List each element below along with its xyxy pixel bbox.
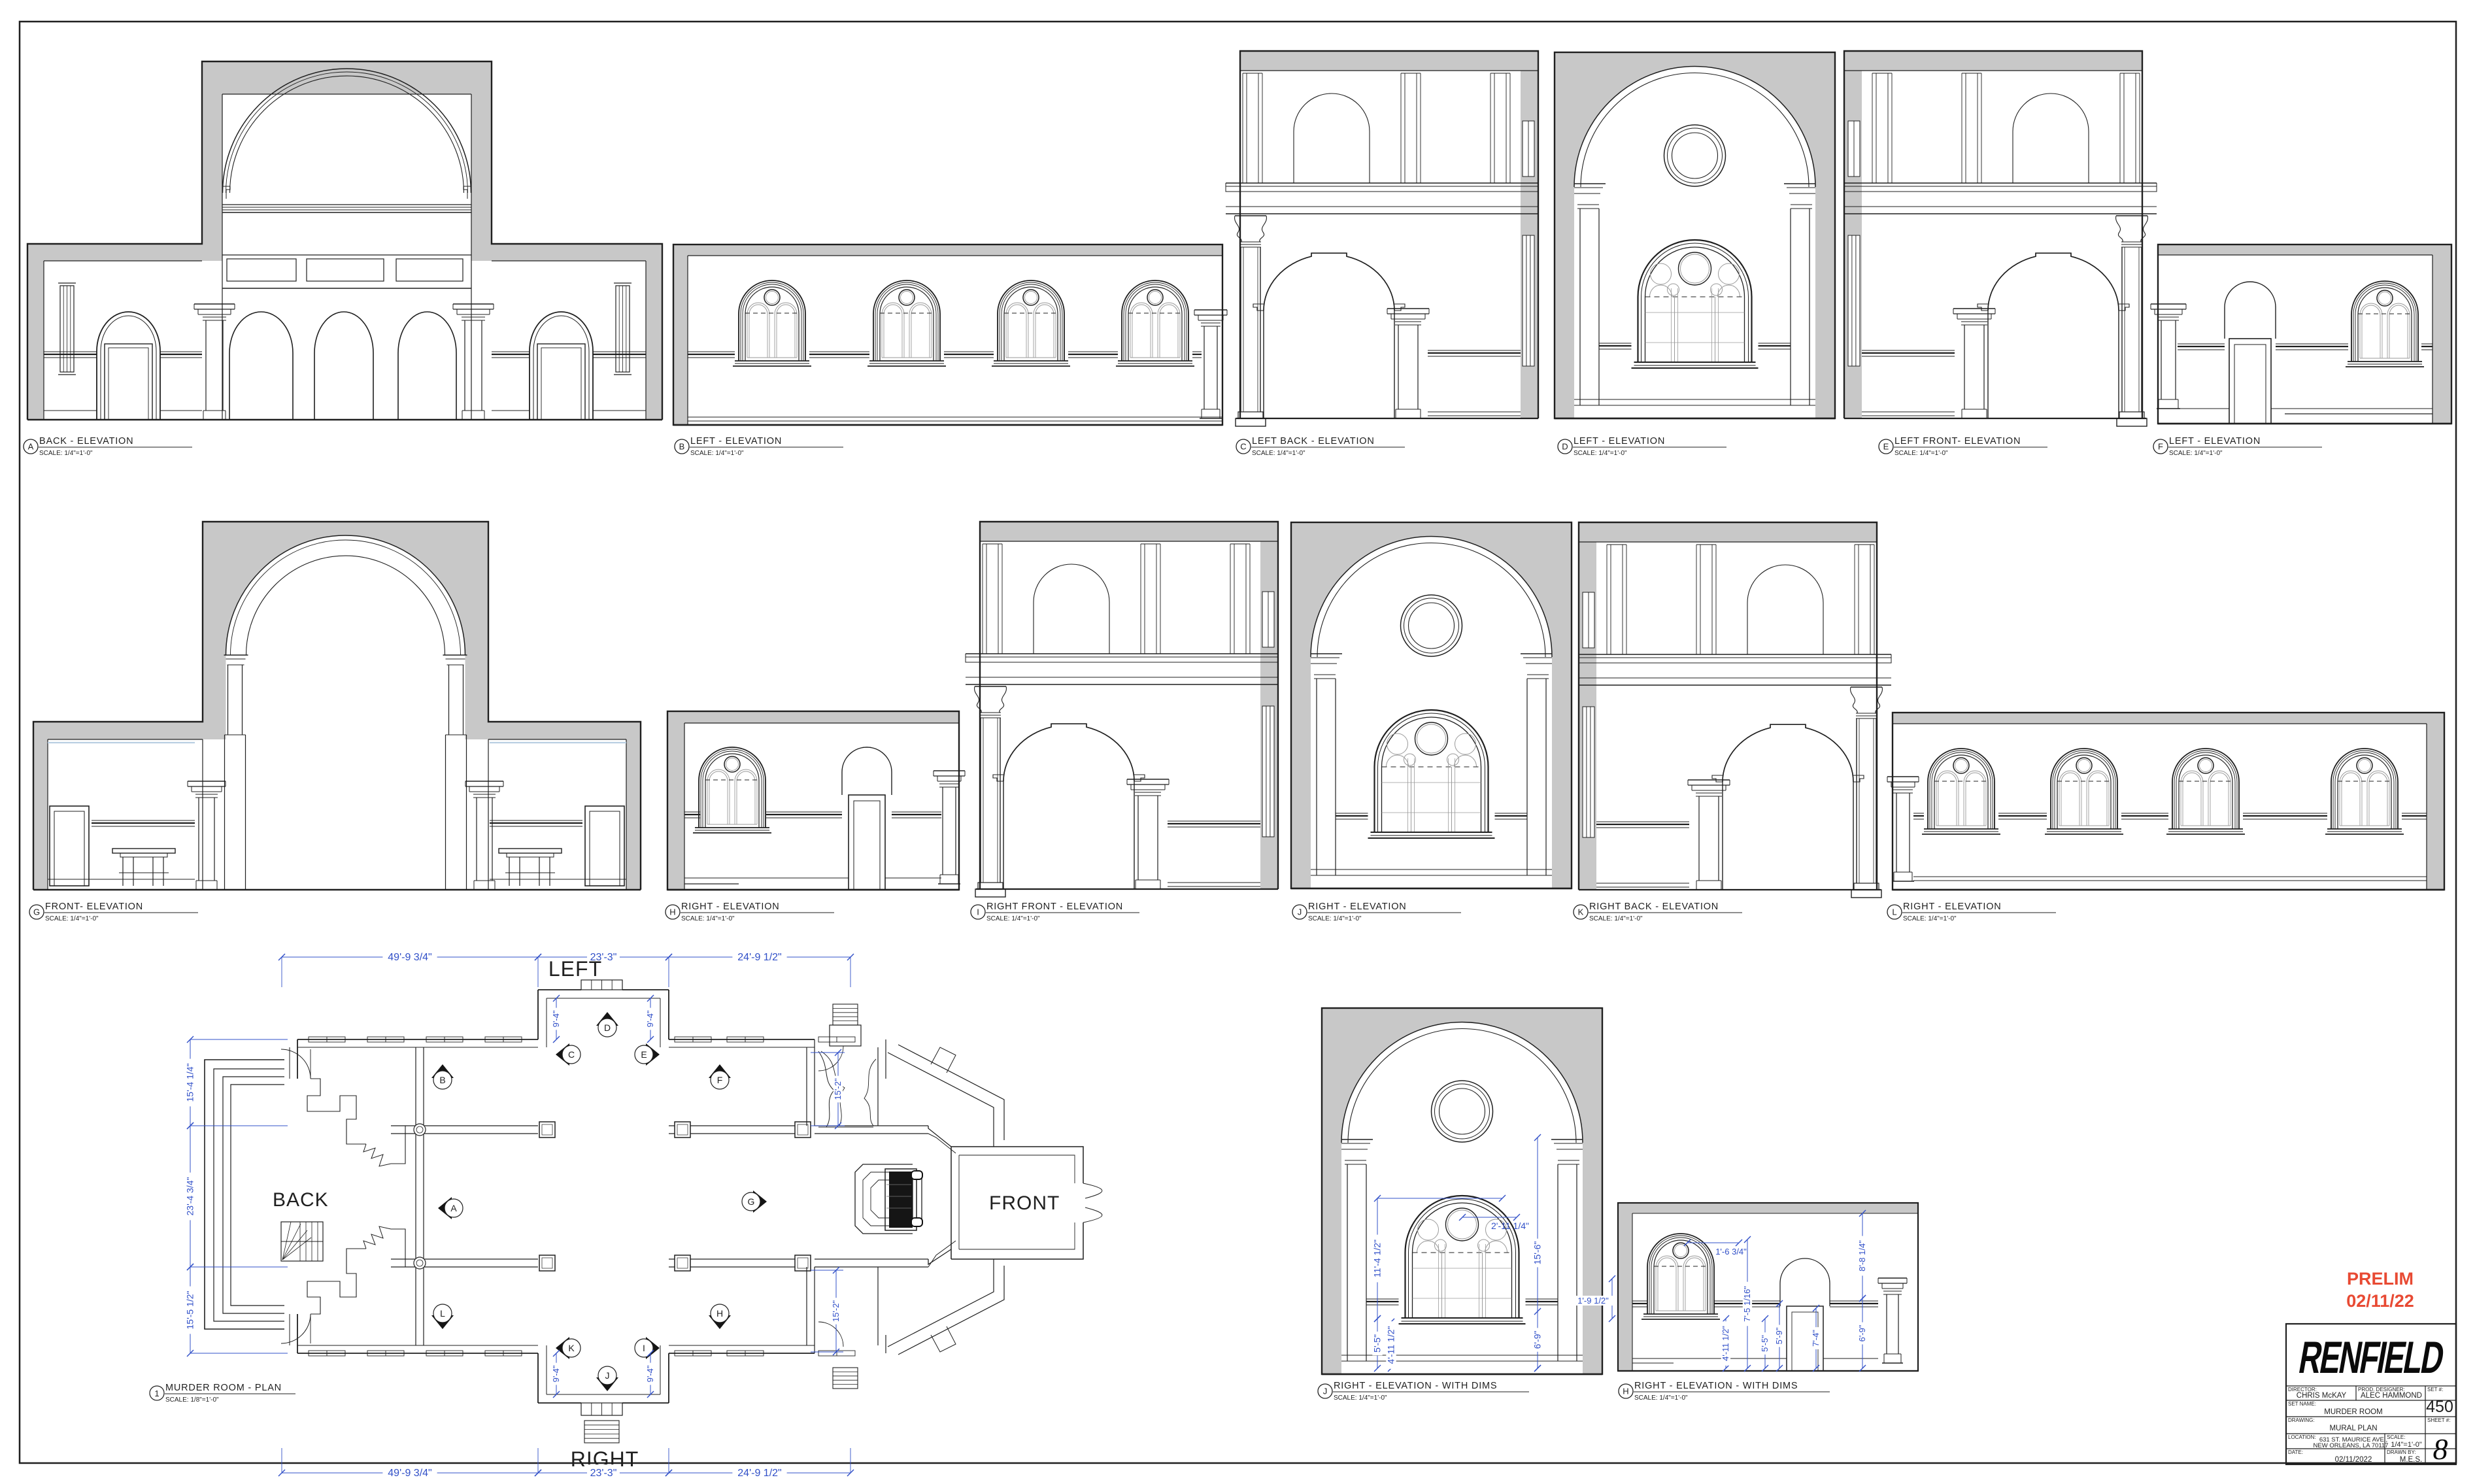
svg-text:K: K	[568, 1343, 575, 1353]
svg-text:FRONT- ELEVATION: FRONT- ELEVATION	[45, 902, 143, 912]
svg-text:6'-9": 6'-9"	[1857, 1324, 1867, 1341]
svg-text:LEFT - ELEVATION: LEFT - ELEVATION	[1574, 436, 1665, 447]
svg-text:C: C	[1240, 442, 1246, 452]
svg-text:2'-11 1/4": 2'-11 1/4"	[1491, 1221, 1529, 1231]
svg-text:49'-9 3/4": 49'-9 3/4"	[388, 1468, 431, 1479]
svg-text:15'-4 1/4": 15'-4 1/4"	[184, 1063, 195, 1102]
svg-text:B: B	[439, 1075, 445, 1085]
svg-text:J: J	[605, 1370, 610, 1381]
svg-text:9'-4": 9'-4"	[645, 1010, 655, 1027]
svg-text:4'-11 1/2": 4'-11 1/2"	[1721, 1326, 1730, 1361]
svg-text:15'-2": 15'-2"	[831, 1300, 841, 1323]
svg-text:LEFT BACK - ELEVATION: LEFT BACK - ELEVATION	[1252, 436, 1375, 447]
svg-text:NEW ORLEANS, LA 70117: NEW ORLEANS, LA 70117	[2314, 1442, 2389, 1449]
svg-text:23'-3": 23'-3"	[590, 1468, 617, 1479]
svg-text:SET #:: SET #:	[2427, 1387, 2443, 1392]
svg-text:H: H	[1623, 1387, 1628, 1396]
svg-text:9'-4": 9'-4"	[645, 1365, 655, 1382]
svg-text:02/11/2022: 02/11/2022	[2335, 1456, 2372, 1464]
svg-text:CHRIS McKAY: CHRIS McKAY	[2297, 1392, 2347, 1400]
svg-text:15'-6": 15'-6"	[1532, 1241, 1542, 1265]
svg-text:ALEC HAMMOND: ALEC HAMMOND	[2361, 1392, 2422, 1400]
svg-text:1'-9 1/2": 1'-9 1/2"	[1577, 1296, 1609, 1306]
svg-text:SCALE: 1/4"=1'-0": SCALE: 1/4"=1'-0"	[45, 915, 99, 922]
svg-text:J: J	[1323, 1387, 1328, 1396]
svg-text:L: L	[1892, 907, 1896, 917]
svg-text:SCALE: 1/4"=1'-0": SCALE: 1/4"=1'-0"	[681, 915, 735, 922]
svg-text:SCALE: 1/4"=1'-0": SCALE: 1/4"=1'-0"	[2169, 450, 2223, 457]
svg-text:H: H	[716, 1308, 723, 1319]
svg-text:1/4"=1'-0": 1/4"=1'-0"	[2391, 1441, 2422, 1449]
svg-text:C: C	[568, 1049, 575, 1060]
svg-text:7'-4": 7'-4"	[1811, 1330, 1821, 1347]
svg-text:DATE:: DATE:	[2288, 1449, 2303, 1455]
svg-text:5'-5": 5'-5"	[1372, 1334, 1382, 1353]
svg-text:5'-9": 5'-9"	[1774, 1327, 1784, 1344]
svg-text:15'-5 1/2": 15'-5 1/2"	[184, 1290, 195, 1329]
svg-text:11'-4 1/2": 11'-4 1/2"	[1372, 1239, 1382, 1277]
svg-text:LEFT - ELEVATION: LEFT - ELEVATION	[2169, 436, 2261, 447]
svg-text:RIGHT - ELEVATION - WITH DIMS: RIGHT - ELEVATION - WITH DIMS	[1634, 1381, 1798, 1391]
svg-text:BACK - ELEVATION: BACK - ELEVATION	[39, 436, 133, 447]
svg-text:I: I	[977, 907, 979, 917]
svg-text:MURDER ROOM: MURDER ROOM	[2324, 1408, 2382, 1416]
svg-text:RIGHT - ELEVATION: RIGHT - ELEVATION	[681, 902, 780, 912]
svg-text:LEFT - ELEVATION: LEFT - ELEVATION	[690, 436, 782, 447]
svg-text:SCALE: 1/4"=1'-0": SCALE: 1/4"=1'-0"	[1894, 450, 1948, 457]
svg-text:49'-9 3/4": 49'-9 3/4"	[388, 952, 431, 963]
svg-text:E: E	[641, 1049, 647, 1060]
svg-text:RIGHT FRONT - ELEVATION: RIGHT FRONT - ELEVATION	[986, 902, 1123, 912]
svg-text:BACK: BACK	[273, 1189, 329, 1211]
svg-text:SCALE: 1/4"=1'-0": SCALE: 1/4"=1'-0"	[1334, 1394, 1387, 1402]
svg-text:H: H	[669, 907, 675, 917]
svg-text:RIGHT - ELEVATION: RIGHT - ELEVATION	[1308, 902, 1407, 912]
svg-text:FRONT: FRONT	[989, 1192, 1060, 1214]
svg-text:DRAWN BY:: DRAWN BY:	[2387, 1449, 2416, 1455]
svg-text:6'-9": 6'-9"	[1532, 1331, 1542, 1349]
svg-text:PRELIM: PRELIM	[2347, 1269, 2414, 1289]
svg-text:B: B	[679, 442, 685, 452]
svg-text:J: J	[1298, 907, 1302, 917]
svg-text:SCALE: 1/4"=1'-0": SCALE: 1/4"=1'-0"	[1308, 915, 1362, 922]
svg-text:RIGHT BACK - ELEVATION: RIGHT BACK - ELEVATION	[1589, 902, 1719, 912]
svg-text:D: D	[604, 1022, 611, 1033]
svg-text:F: F	[717, 1075, 723, 1085]
svg-text:F: F	[2158, 442, 2163, 452]
svg-text:I: I	[643, 1343, 645, 1353]
svg-text:SCALE: 1/4"=1'-0": SCALE: 1/4"=1'-0"	[1903, 915, 1957, 922]
svg-text:15'-2": 15'-2"	[833, 1078, 843, 1100]
svg-text:SCALE: 1/4"=1'-0": SCALE: 1/4"=1'-0"	[39, 450, 93, 457]
svg-text:K: K	[1578, 907, 1584, 917]
svg-text:23'-3": 23'-3"	[590, 952, 617, 963]
svg-text:RENFIELD: RENFIELD	[2295, 1332, 2447, 1383]
svg-text:23'-4 3/4": 23'-4 3/4"	[184, 1177, 195, 1215]
svg-text:SCALE: 1/4"=1'-0": SCALE: 1/4"=1'-0"	[1252, 450, 1305, 457]
svg-text:A: A	[450, 1203, 457, 1213]
svg-text:8'-8 1/4": 8'-8 1/4"	[1857, 1240, 1867, 1272]
svg-text:M.E.S.: M.E.S.	[2400, 1456, 2423, 1464]
svg-text:E: E	[1883, 442, 1889, 452]
svg-text:SCALE: 1/4"=1'-0": SCALE: 1/4"=1'-0"	[986, 915, 1040, 922]
svg-text:MURAL PLAN: MURAL PLAN	[2329, 1425, 2377, 1432]
svg-text:D: D	[1562, 442, 1568, 452]
svg-text:SHEET #:: SHEET #:	[2427, 1417, 2450, 1423]
svg-text:SCALE: 1/8"=1'-0": SCALE: 1/8"=1'-0"	[165, 1396, 219, 1404]
svg-text:24'-9 1/2": 24'-9 1/2"	[737, 952, 781, 963]
svg-text:9'-4": 9'-4"	[551, 1010, 561, 1027]
svg-text:SCALE: 1/4"=1'-0": SCALE: 1/4"=1'-0"	[690, 450, 744, 457]
svg-text:4'-11 1/2": 4'-11 1/2"	[1385, 1326, 1396, 1364]
svg-text:RIGHT - ELEVATION: RIGHT - ELEVATION	[1903, 902, 2002, 912]
svg-text:450: 450	[2426, 1398, 2453, 1416]
svg-text:SCALE: 1/4"=1'-0": SCALE: 1/4"=1'-0"	[1589, 915, 1643, 922]
svg-text:MURDER ROOM - PLAN: MURDER ROOM - PLAN	[165, 1383, 282, 1393]
svg-text:A: A	[28, 442, 34, 452]
svg-text:G: G	[748, 1196, 755, 1207]
svg-text:24'-9 1/2": 24'-9 1/2"	[737, 1468, 781, 1479]
svg-text:5'-5": 5'-5"	[1760, 1335, 1770, 1352]
svg-text:LEFT FRONT- ELEVATION: LEFT FRONT- ELEVATION	[1894, 436, 2021, 447]
svg-text:7'-5 1/16": 7'-5 1/16"	[1742, 1286, 1752, 1322]
svg-text:LOCATION:: LOCATION:	[2288, 1434, 2316, 1440]
svg-text:L: L	[440, 1308, 445, 1319]
svg-text:DRAWING:: DRAWING:	[2288, 1417, 2315, 1423]
svg-text:SCALE:: SCALE:	[2387, 1434, 2405, 1440]
svg-text:G: G	[33, 907, 40, 917]
svg-text:9'-4": 9'-4"	[551, 1365, 561, 1382]
svg-text:SCALE: 1/4"=1'-0": SCALE: 1/4"=1'-0"	[1574, 450, 1627, 457]
svg-text:1'-6 3/4": 1'-6 3/4"	[1715, 1247, 1747, 1256]
svg-text:8: 8	[2433, 1432, 2448, 1466]
svg-text:1: 1	[154, 1389, 159, 1398]
svg-text:SCALE: 1/4"=1'-0": SCALE: 1/4"=1'-0"	[1634, 1394, 1688, 1402]
svg-text:SET NAME:: SET NAME:	[2288, 1401, 2316, 1407]
svg-text:RIGHT - ELEVATION - WITH DIMS: RIGHT - ELEVATION - WITH DIMS	[1334, 1381, 1497, 1391]
svg-text:02/11/22: 02/11/22	[2346, 1291, 2414, 1311]
